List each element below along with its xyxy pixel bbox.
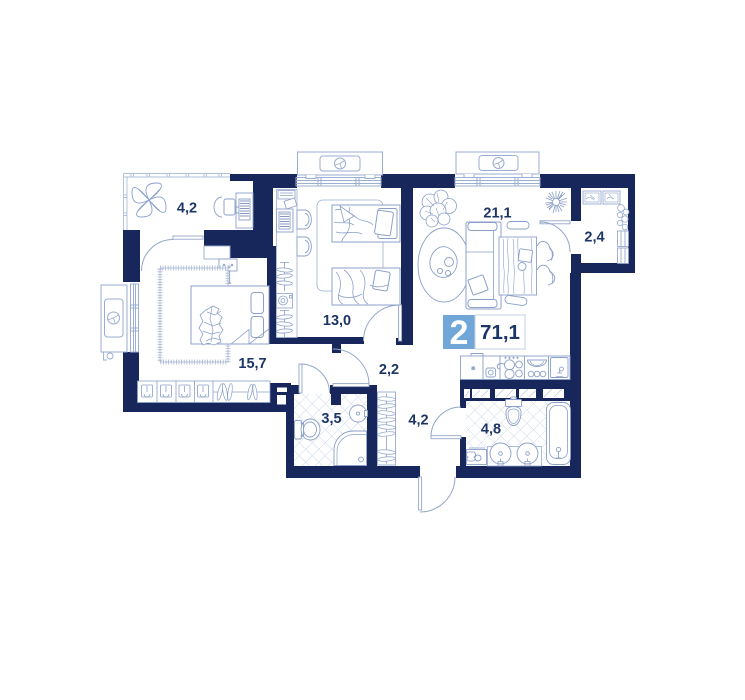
svg-text:21,1: 21,1	[483, 206, 511, 222]
svg-text:71,1: 71,1	[480, 321, 520, 344]
svg-text:15,7: 15,7	[238, 356, 266, 372]
svg-text:4,2: 4,2	[408, 413, 428, 429]
svg-text:3,5: 3,5	[321, 411, 341, 427]
svg-text:2: 2	[450, 314, 469, 352]
svg-text:2,2: 2,2	[379, 362, 399, 378]
svg-text:13,0: 13,0	[323, 313, 351, 329]
svg-text:4,2: 4,2	[177, 201, 197, 217]
svg-text:2,4: 2,4	[584, 230, 604, 246]
svg-text:4,8: 4,8	[481, 422, 501, 438]
